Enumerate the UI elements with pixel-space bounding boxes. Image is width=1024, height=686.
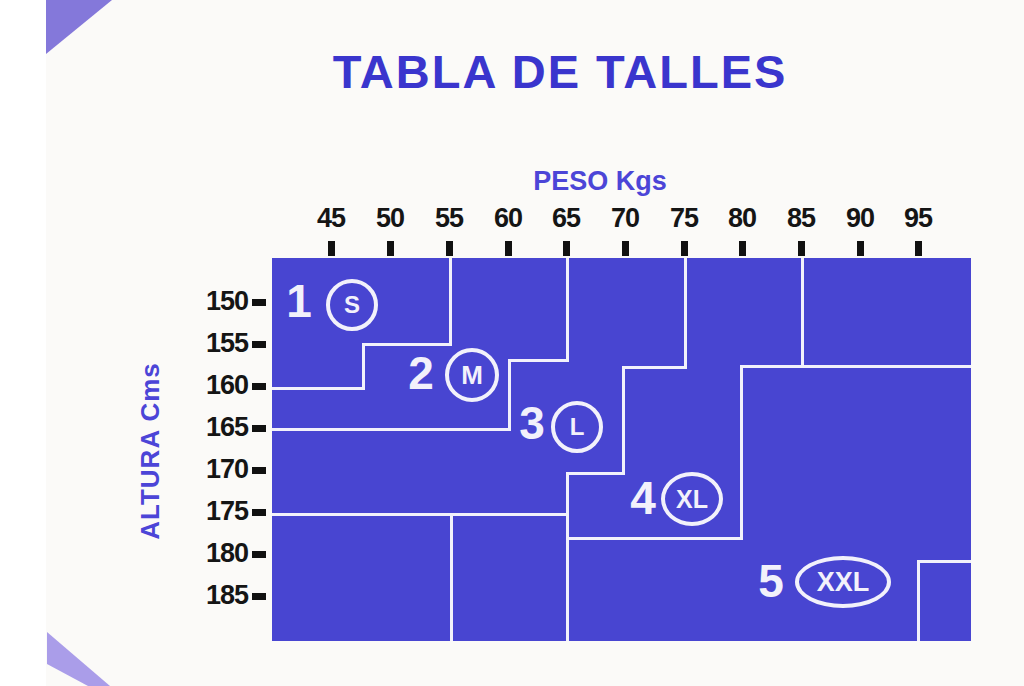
height-tick-label: 150	[160, 286, 248, 317]
region-boundary-line	[569, 537, 743, 540]
size-letter-badge: L	[551, 401, 603, 453]
height-tick-label: 155	[160, 328, 248, 359]
weight-tick-mark	[563, 241, 570, 256]
region-boundary-line	[508, 359, 569, 362]
region-boundary-line	[272, 428, 511, 431]
weight-tick-label: 75	[656, 203, 712, 234]
height-tick-label: 170	[160, 454, 248, 485]
weight-tick-mark	[915, 241, 922, 256]
size-chart-page: TABLA DE TALLES PESO Kgs ALTURA Cms 1S2M…	[0, 0, 1024, 686]
left-margin-strip	[0, 0, 46, 686]
region-boundary-line	[684, 258, 687, 368]
corner-stripe-decoration	[46, 626, 110, 686]
height-tick-label: 175	[160, 496, 248, 527]
region-boundary-line	[450, 513, 453, 641]
weight-tick-label: 70	[597, 203, 653, 234]
weight-tick-label: 65	[538, 203, 594, 234]
region-boundary-line	[449, 258, 452, 345]
height-tick-mark	[252, 551, 266, 558]
size-letter-badge: S	[326, 279, 378, 331]
weight-tick-label: 80	[714, 203, 770, 234]
height-tick-mark	[252, 341, 266, 348]
region-boundary-line	[740, 365, 743, 540]
weight-tick-mark	[739, 241, 746, 256]
weight-tick-label: 50	[362, 203, 418, 234]
region-boundary-line	[272, 513, 569, 516]
region-boundary-line	[801, 258, 804, 368]
weight-tick-label: 45	[303, 203, 359, 234]
weight-tick-mark	[505, 241, 512, 256]
region-boundary-line	[622, 366, 625, 475]
height-tick-label: 185	[160, 580, 248, 611]
region-boundary-line	[740, 365, 971, 368]
height-axis-title: ALTURA Cms	[135, 331, 165, 571]
weight-tick-mark	[622, 241, 629, 256]
height-tick-mark	[252, 593, 266, 600]
size-letter-badge: XL	[661, 472, 723, 526]
size-chart-plot-area: 1S2M3L4XL5XXL	[272, 258, 971, 641]
weight-tick-label: 85	[773, 203, 829, 234]
weight-axis-title: PESO Kgs	[450, 166, 750, 197]
region-boundary-line	[566, 472, 569, 641]
weight-tick-label: 60	[480, 203, 536, 234]
height-tick-mark	[252, 467, 266, 474]
size-letter-badge: M	[445, 348, 499, 402]
height-tick-label: 160	[160, 370, 248, 401]
size-letter-badge: XXL	[795, 556, 891, 608]
weight-tick-mark	[387, 241, 394, 256]
height-tick-mark	[252, 299, 266, 306]
corner-triangle-decoration	[46, 0, 112, 54]
region-boundary-line	[362, 343, 365, 390]
height-tick-mark	[252, 383, 266, 390]
region-boundary-line	[917, 560, 920, 641]
weight-tick-mark	[446, 241, 453, 256]
region-boundary-line	[272, 387, 365, 390]
region-boundary-line	[917, 560, 971, 563]
weight-tick-label: 95	[890, 203, 946, 234]
weight-tick-mark	[857, 241, 864, 256]
weight-tick-mark	[798, 241, 805, 256]
page-title: TABLA DE TALLES	[230, 44, 890, 99]
weight-tick-label: 90	[832, 203, 888, 234]
region-boundary-line	[566, 258, 569, 361]
height-tick-mark	[252, 425, 266, 432]
weight-tick-mark	[328, 241, 335, 256]
height-tick-label: 165	[160, 412, 248, 443]
height-tick-label: 180	[160, 538, 248, 569]
weight-tick-mark	[681, 241, 688, 256]
weight-tick-label: 55	[421, 203, 477, 234]
region-boundary-line	[622, 366, 687, 369]
height-tick-mark	[252, 509, 266, 516]
